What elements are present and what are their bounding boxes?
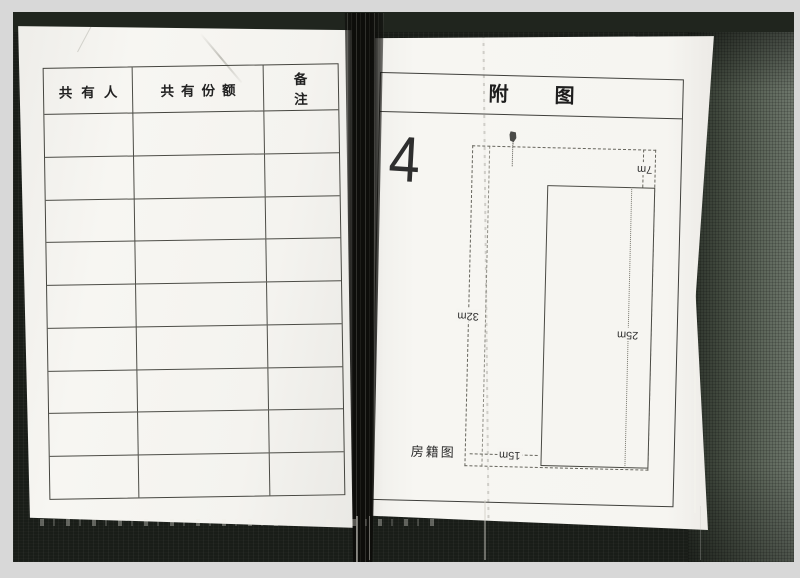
table-cell-share: [137, 325, 269, 369]
table-row: [48, 367, 343, 414]
north-mark-line: [512, 142, 514, 166]
table-cell-share: [137, 368, 269, 412]
column-header-share: 共有份额: [133, 65, 265, 112]
table-cell-remarks: [269, 410, 344, 453]
table-row: [46, 239, 341, 286]
table-cell-coowner: [50, 456, 140, 499]
dimension-label-15m: 15m: [497, 447, 523, 461]
table-cell-share: [133, 111, 265, 155]
table-cell-share: [135, 240, 267, 284]
north-mark: [507, 129, 520, 167]
scan-noise-specks: [40, 519, 440, 526]
table-cell-coowner: [49, 413, 139, 456]
table-cell-coowner: [48, 370, 138, 413]
table-cell-share: [136, 283, 268, 327]
table-row: [46, 196, 341, 243]
table-row: [47, 281, 342, 328]
table-body: [44, 110, 344, 499]
table-cell-coowner: [45, 156, 135, 199]
table-cell-share: [138, 411, 270, 455]
table-row: [50, 452, 345, 498]
dimension-label-7m: 7m: [635, 162, 655, 176]
dimension-label-32m: 32m: [455, 308, 481, 322]
table-header-row: 共有人 共有份额 备注: [44, 64, 339, 115]
column-header-coowner: 共有人: [44, 67, 134, 113]
table-cell-remarks: [266, 196, 341, 239]
table-cell-remarks: [264, 110, 339, 153]
coowner-table: 共有人 共有份额 备注: [43, 63, 346, 500]
table-cell-remarks: [268, 324, 343, 367]
table-cell-coowner: [46, 199, 136, 242]
table-cell-coowner: [48, 327, 138, 370]
table-cell-coowner: [44, 113, 134, 156]
table-cell-coowner: [46, 242, 136, 285]
scan-scratch: [700, 506, 701, 560]
table-cell-coowner: [47, 285, 137, 328]
table-cell-remarks: [270, 452, 345, 495]
table-cell-remarks: [268, 367, 343, 410]
handwritten-page-number: 4: [387, 126, 422, 192]
table-cell-share: [139, 454, 271, 498]
table-row: [49, 410, 344, 457]
scan-scratch: [484, 500, 486, 560]
table-row: [44, 110, 339, 157]
scan-scratch: [356, 516, 358, 562]
left-page: 共有人 共有份额 备注: [15, 22, 362, 530]
attached-drawing-title: 附图: [379, 72, 684, 119]
scanned-booklet: 共有人 共有份额 备注: [0, 0, 800, 578]
table-row: [45, 153, 340, 200]
attached-drawing-sheet: 附图 4 7m 25m 32m 15m 房籍图: [370, 72, 684, 507]
table-cell-remarks: [267, 281, 342, 324]
scan-scratch: [369, 516, 370, 560]
map-caption: 房籍图: [411, 441, 456, 461]
table-cell-share: [135, 197, 267, 241]
table-cell-remarks: [265, 153, 340, 196]
north-mark-glyph: [509, 131, 516, 142]
table-row: [48, 324, 343, 371]
column-header-remarks: 备注: [264, 64, 339, 110]
right-page: 附图 4 7m 25m 32m 15m 房籍图: [366, 28, 716, 534]
dimension-label-25m: 25m: [615, 327, 641, 341]
table-cell-remarks: [266, 239, 341, 282]
table-cell-share: [134, 154, 266, 198]
page-edge-highlight: [694, 258, 696, 513]
